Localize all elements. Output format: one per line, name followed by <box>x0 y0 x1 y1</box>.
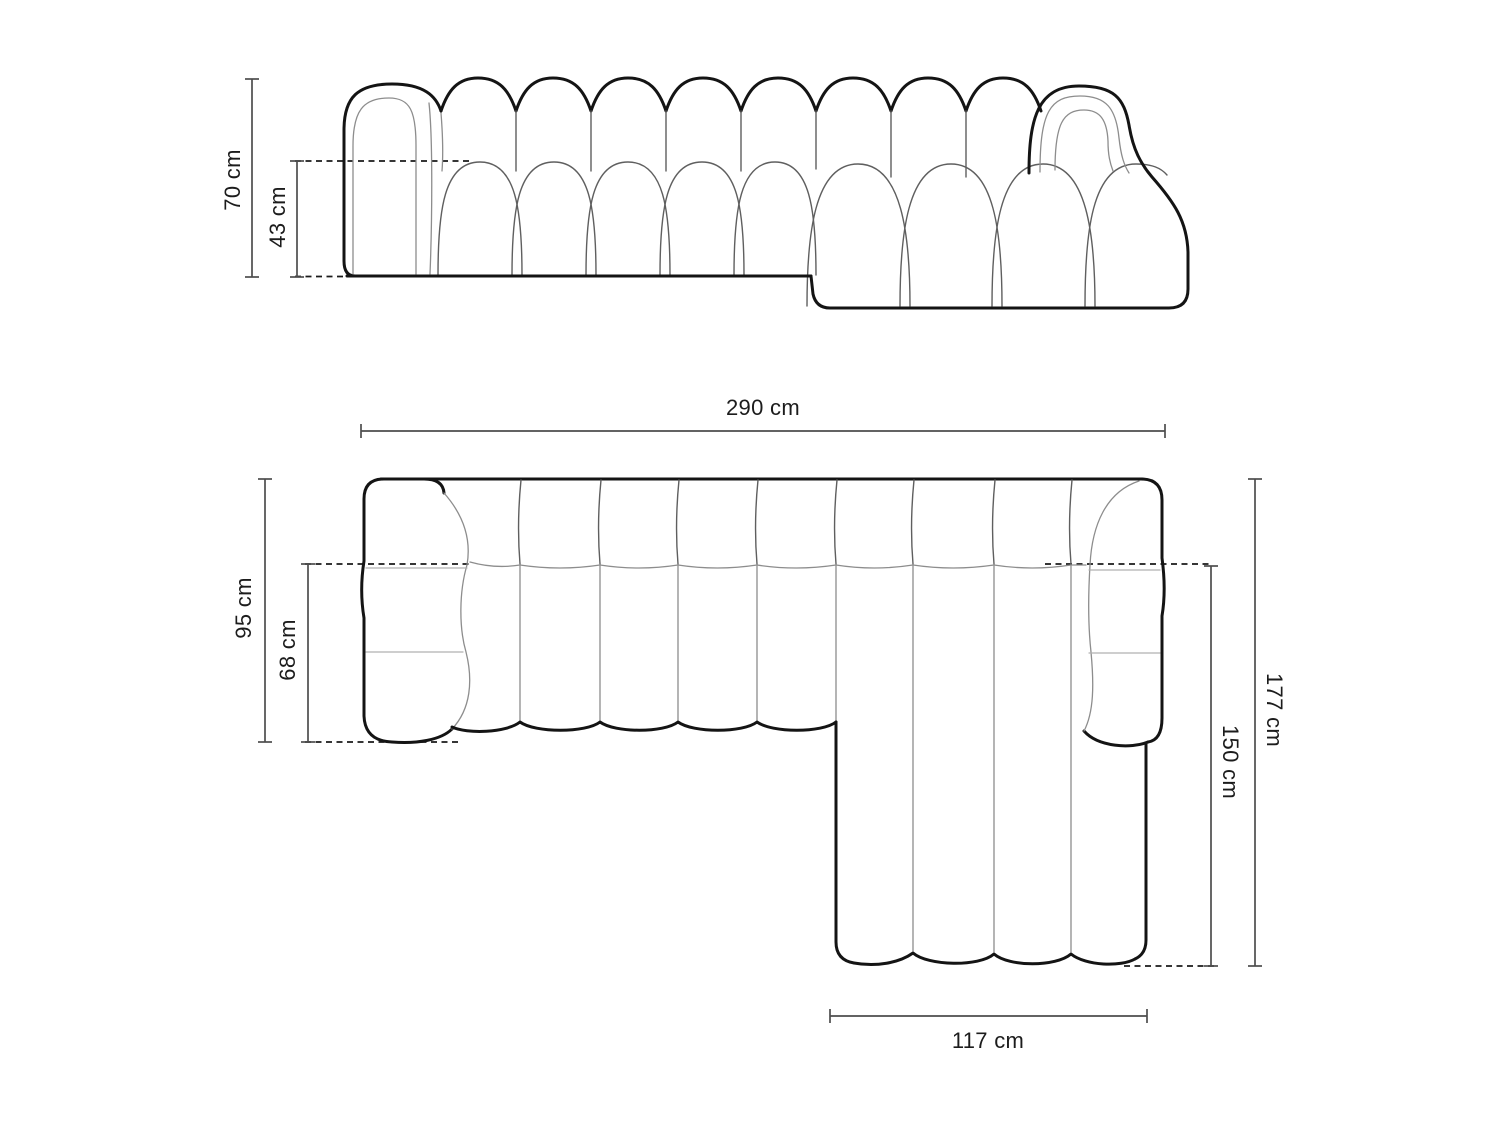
top-view-drawing <box>305 479 1214 966</box>
top-seat-channel-lines <box>520 566 1071 952</box>
front-left-armrest-inner-arch <box>353 98 416 274</box>
dim-label-total-width: 290 cm <box>726 395 800 421</box>
dim-line-seat-height <box>290 161 304 277</box>
dim-label-seat-height: 43 cm <box>265 186 291 247</box>
front-view-drawing <box>295 78 1188 308</box>
top-chaise-right-edge <box>1135 743 1146 959</box>
dim-line-chaise-length <box>1204 566 1218 966</box>
front-right-outline <box>811 86 1188 308</box>
dimension-diagram: 70 cm 43 cm 290 cm 95 cm 68 cm 150 cm 17… <box>0 0 1495 1121</box>
front-chaise-cushions <box>807 164 1167 306</box>
dim-line-total-depth <box>258 479 272 742</box>
top-right-armrest-outline <box>1141 479 1164 742</box>
dim-label-seat-depth: 68 cm <box>275 619 301 680</box>
dim-label-chaise-side-depth: 177 cm <box>1261 673 1287 747</box>
top-seat-front-scallops <box>452 722 836 731</box>
dim-label-chaise-length: 150 cm <box>1217 725 1243 799</box>
top-left-armrest-outline <box>362 479 452 742</box>
front-left-armrest-edge-line <box>429 103 432 274</box>
dim-label-total-height: 70 cm <box>220 149 246 210</box>
front-left-armrest-cusp-line <box>441 113 443 171</box>
top-backrest-channel-lines <box>519 480 1072 564</box>
front-right-armrest-inner-arch-1 <box>1040 96 1129 173</box>
top-right-armrest-bottom <box>1084 731 1148 746</box>
top-right-armrest-inner-edge <box>1084 481 1139 731</box>
top-chaise-front-scallops <box>854 953 1135 965</box>
dim-label-total-depth: 95 cm <box>231 577 257 638</box>
dim-line-total-height <box>245 79 259 277</box>
dim-line-chaise-side-depth <box>1248 479 1262 966</box>
front-seat-cushions <box>438 162 816 275</box>
front-right-armrest-inner-arch-2 <box>1055 110 1113 171</box>
dim-label-chaise-width: 117 cm <box>952 1028 1024 1054</box>
top-left-armrest-inner-edge <box>444 493 470 729</box>
front-backrest-channel-lines <box>516 111 966 177</box>
dimension-lines <box>245 79 1262 1023</box>
dim-line-seat-depth <box>301 564 315 742</box>
dim-line-total-width <box>361 424 1165 438</box>
front-backrest-arches <box>441 78 1041 111</box>
dim-line-chaise-width <box>830 1009 1147 1023</box>
top-chaise-left-edge <box>836 722 854 963</box>
